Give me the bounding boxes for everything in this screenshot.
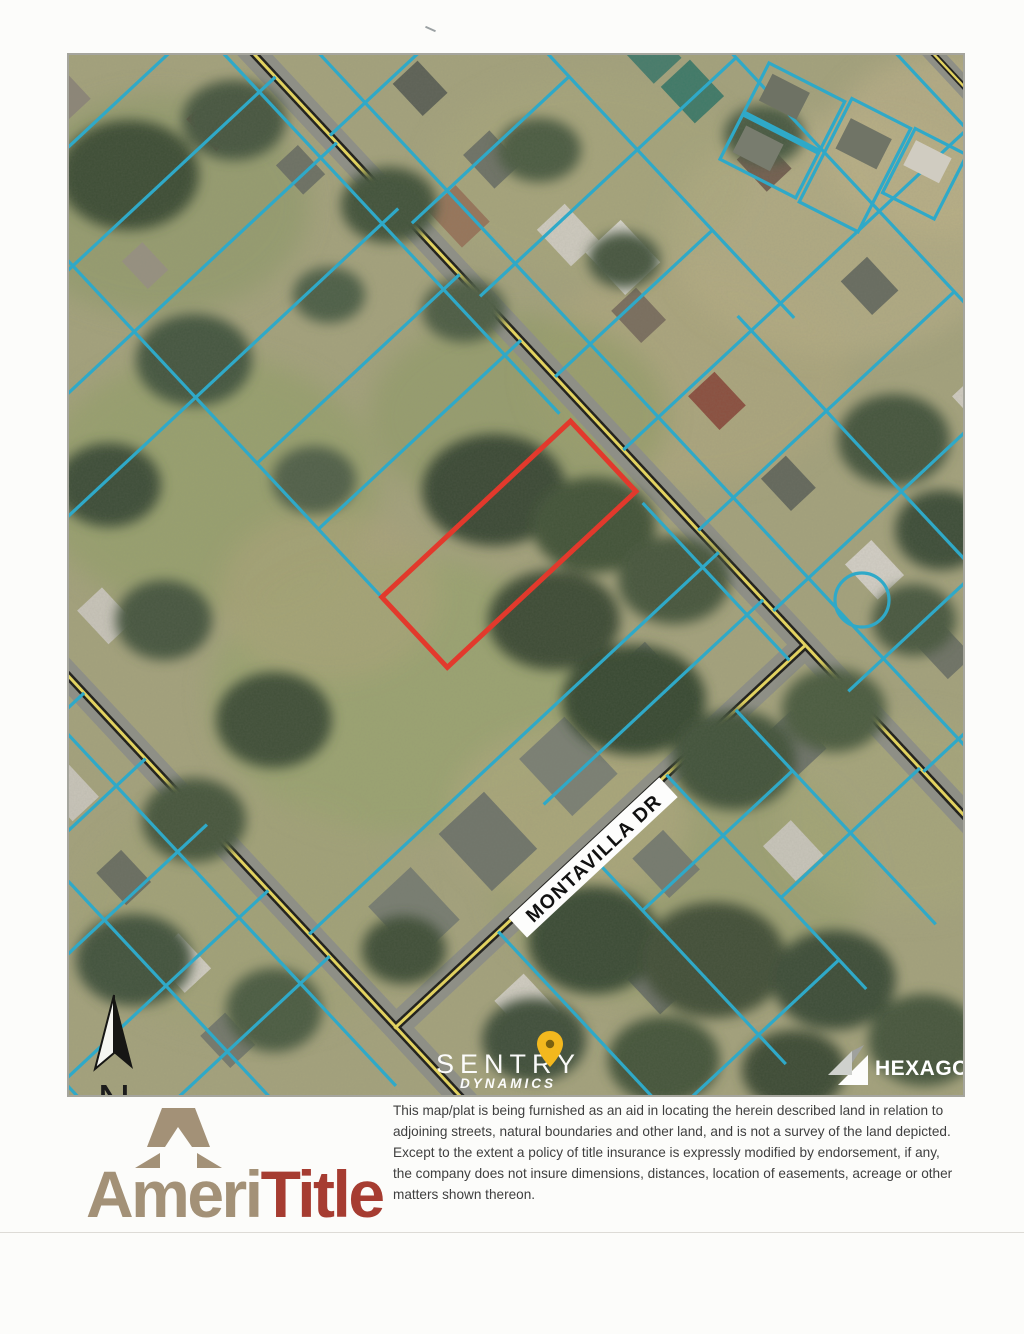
dynamics-label: DYNAMICS: [460, 1076, 556, 1091]
north-label: N: [97, 1075, 130, 1095]
scanned-plat-page: MONTAVILLA DR N SENTRY DYNAMICS: [0, 0, 1024, 1334]
brand-ameri: Ameri: [86, 1157, 261, 1231]
scan-line: [0, 1232, 1024, 1233]
scan-artifact: [425, 26, 436, 32]
photo-grain-overlay: [69, 55, 963, 1095]
disclaimer-text: This map/plat is being furnished as an a…: [393, 1100, 961, 1205]
aerial-map: MONTAVILLA DR N SENTRY DYNAMICS: [67, 53, 965, 1097]
hexagon-label: HEXAGON: [875, 1057, 963, 1080]
aerial-map-svg: MONTAVILLA DR N SENTRY DYNAMICS: [69, 55, 963, 1095]
brand-title: Title: [261, 1157, 383, 1231]
amerititle-logo: AmeriTitle: [86, 1156, 383, 1232]
